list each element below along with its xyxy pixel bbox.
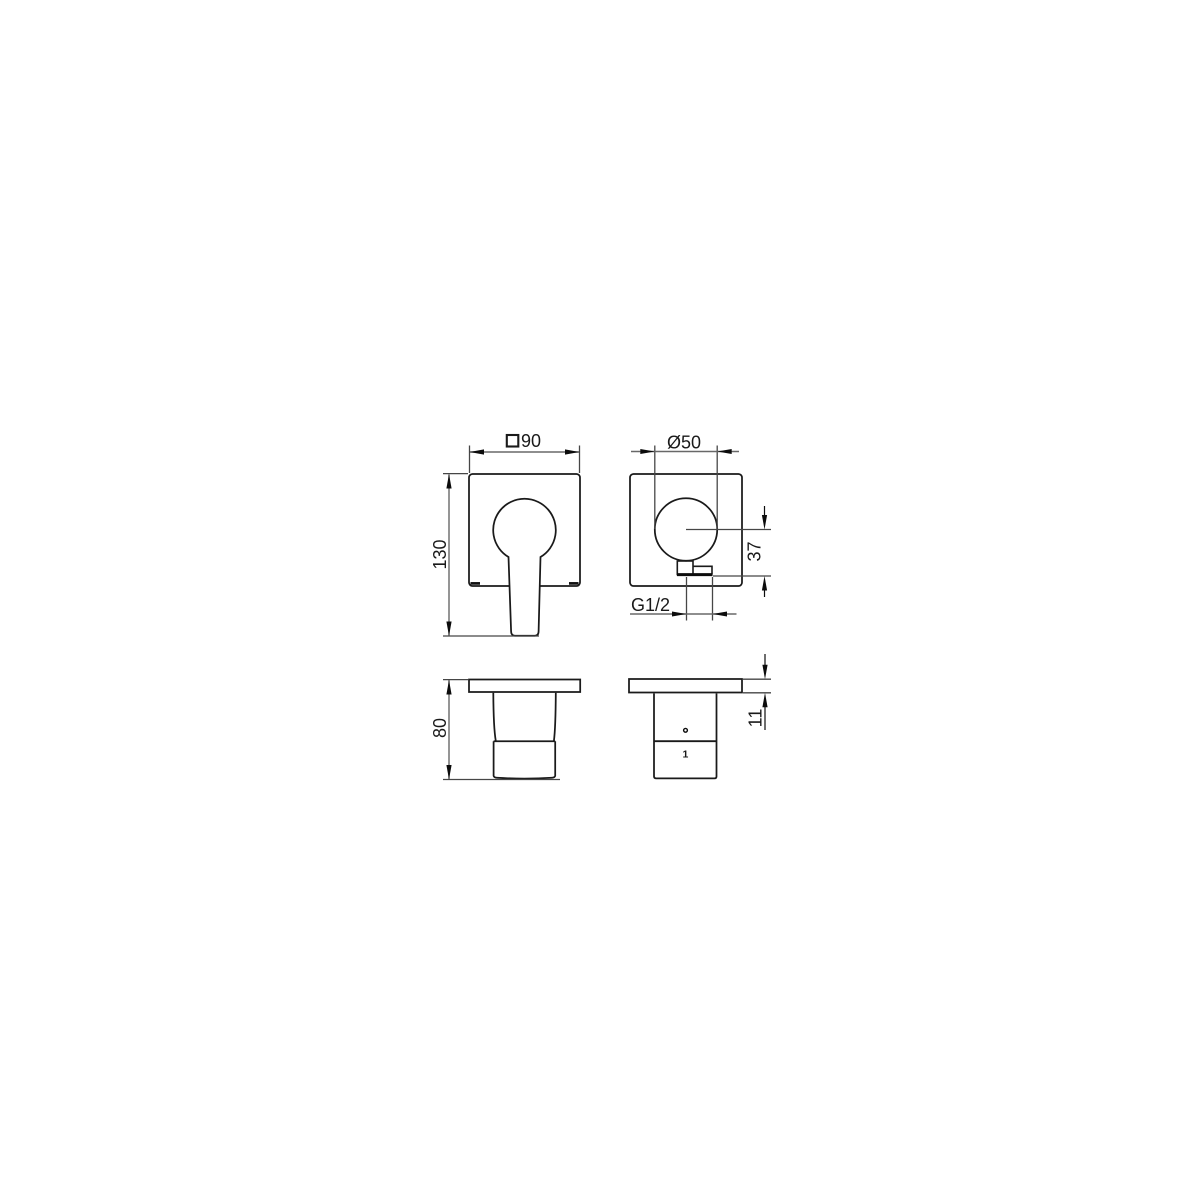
svg-text:Ø50: Ø50 xyxy=(667,433,701,453)
svg-text:90: 90 xyxy=(521,431,541,451)
svg-text:1: 1 xyxy=(683,749,689,761)
svg-text:G1/2: G1/2 xyxy=(631,595,670,615)
svg-text:130: 130 xyxy=(430,539,450,569)
svg-text:80: 80 xyxy=(430,718,450,738)
svg-text:37: 37 xyxy=(745,541,765,561)
svg-text:11: 11 xyxy=(746,709,766,728)
